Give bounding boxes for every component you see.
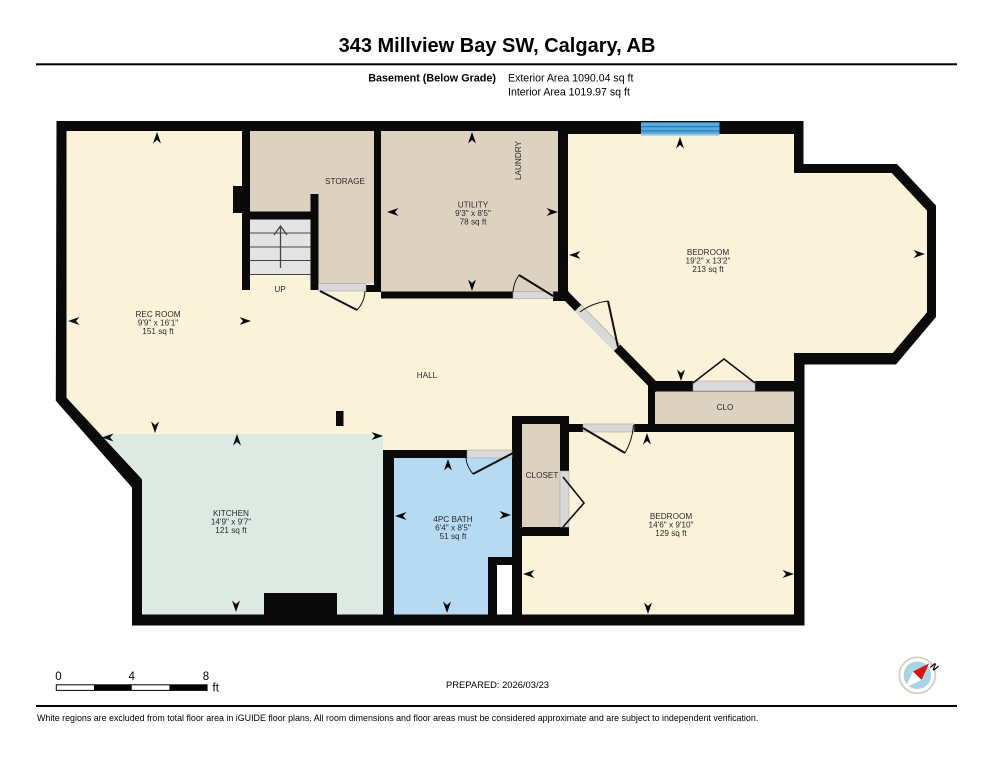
svg-text:8: 8 xyxy=(203,671,209,683)
svg-text:51 sq ft: 51 sq ft xyxy=(440,532,468,541)
svg-text:129 sq ft: 129 sq ft xyxy=(655,529,687,538)
svg-text:343 Millview Bay SW, Calgary,: 343 Millview Bay SW, Calgary, AB xyxy=(339,35,656,57)
svg-text:Basement (Below Grade): Basement (Below Grade) xyxy=(368,73,496,85)
svg-text:ft: ft xyxy=(213,683,220,695)
svg-text:STORAGE: STORAGE xyxy=(325,177,365,186)
svg-text:Interior Area 1019.97 sq ft: Interior Area 1019.97 sq ft xyxy=(508,87,630,99)
svg-text:151 sq ft: 151 sq ft xyxy=(142,327,174,336)
svg-text:UP: UP xyxy=(274,285,286,294)
svg-text:78 sq ft: 78 sq ft xyxy=(460,218,488,227)
svg-text:PREPARED: 2026/03/23: PREPARED: 2026/03/23 xyxy=(446,679,549,690)
svg-text:Exterior Area 1090.04 sq ft: Exterior Area 1090.04 sq ft xyxy=(508,73,633,85)
svg-text:White regions are excluded fro: White regions are excluded from total fl… xyxy=(37,713,758,723)
svg-text:LAUNDRY: LAUNDRY xyxy=(514,140,523,180)
svg-text:4: 4 xyxy=(128,671,135,683)
svg-text:HALL: HALL xyxy=(417,371,438,380)
svg-text:0: 0 xyxy=(55,671,61,683)
svg-text:CLOSET: CLOSET xyxy=(526,471,559,480)
svg-text:213 sq ft: 213 sq ft xyxy=(692,265,724,274)
svg-text:121 sq ft: 121 sq ft xyxy=(215,526,247,535)
svg-text:CLO: CLO xyxy=(717,403,734,412)
